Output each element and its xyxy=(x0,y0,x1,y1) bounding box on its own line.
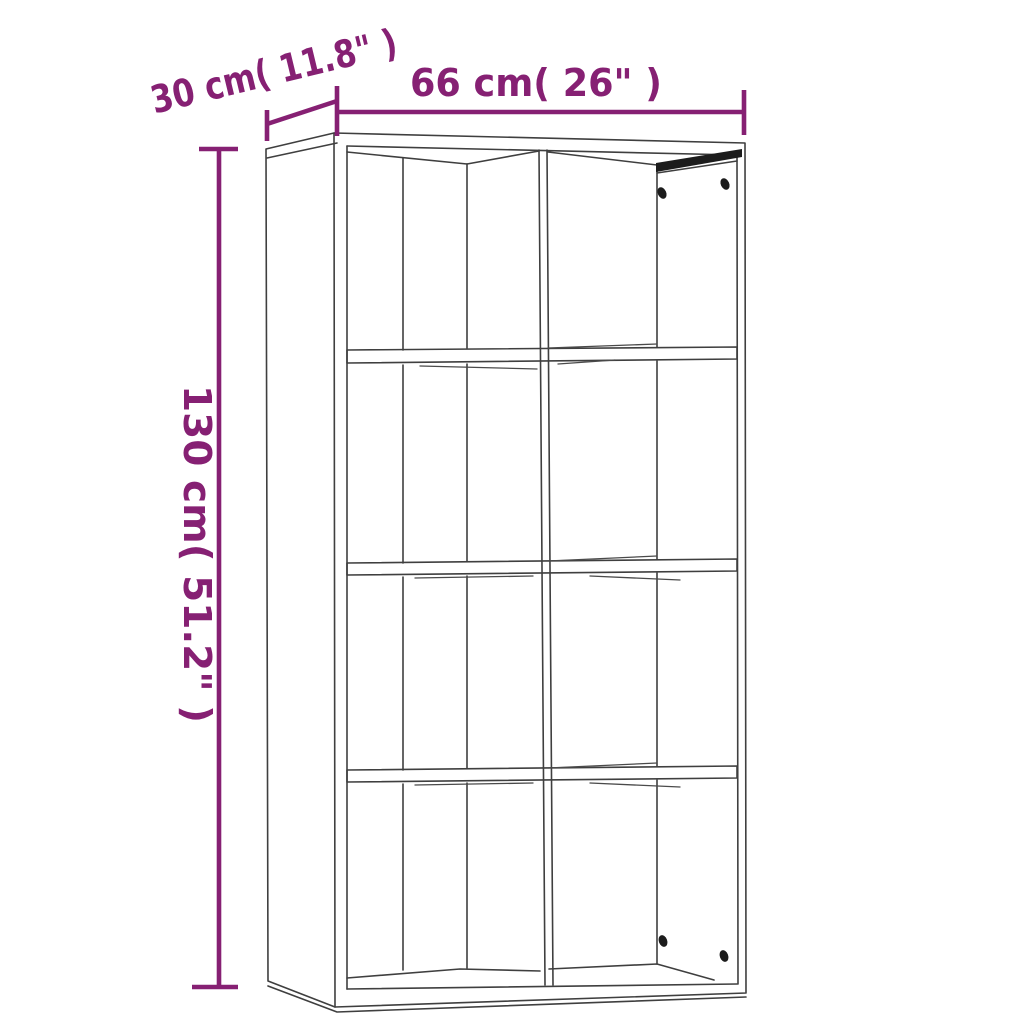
depth-dimension-label: 30 cm( 11.8" ) xyxy=(146,20,401,122)
shelf-1 xyxy=(347,347,737,363)
cabinet-side-top-edge xyxy=(267,143,337,158)
interior-verticals-row-2 xyxy=(403,361,657,563)
floor-right-cell xyxy=(549,964,714,980)
cabinet-base-edge xyxy=(268,986,746,1012)
dimension-diagram: 30 cm( 11.8" ) 66 cm( 26" ) 130 cm( 51.2… xyxy=(0,0,1024,1024)
dimension-labels: 30 cm( 11.8" ) 66 cm( 26" ) 130 cm( 51.2… xyxy=(146,20,662,723)
floor-left-cell xyxy=(347,969,540,978)
shadow-strip xyxy=(656,149,742,172)
ceiling-left-cell xyxy=(347,152,467,164)
ceiling-right-cell xyxy=(548,152,657,165)
screw-hole xyxy=(657,934,669,948)
bottom-rail-inner-edge xyxy=(347,984,737,989)
shelf-top-slivers xyxy=(548,344,657,768)
shelf-perspective-lines xyxy=(415,344,680,787)
hardware-details xyxy=(656,149,742,963)
bookcase-wireframe xyxy=(266,133,746,1012)
interior-verticals-row-1 xyxy=(403,158,657,350)
depth-dimension-line xyxy=(267,101,337,124)
shelf-3 xyxy=(347,766,737,782)
center-divider xyxy=(539,150,553,985)
top-rail-inner-edge xyxy=(347,146,737,155)
ceiling-left-to-divider xyxy=(467,151,539,164)
interior-verticals-row-4 xyxy=(403,780,657,970)
height-dimension-label: 130 cm( 51.2" ) xyxy=(175,385,219,723)
screw-hole xyxy=(718,949,730,963)
dimension-lines xyxy=(192,86,744,987)
width-dimension-label: 66 cm( 26" ) xyxy=(410,61,662,105)
cabinet-side-panel xyxy=(266,133,335,1007)
book-cabinet-dimension-drawing: 30 cm( 11.8" ) 66 cm( 26" ) 130 cm( 51.2… xyxy=(0,0,1024,1024)
screw-hole xyxy=(719,177,732,191)
interior-verticals-row-3 xyxy=(403,573,657,770)
